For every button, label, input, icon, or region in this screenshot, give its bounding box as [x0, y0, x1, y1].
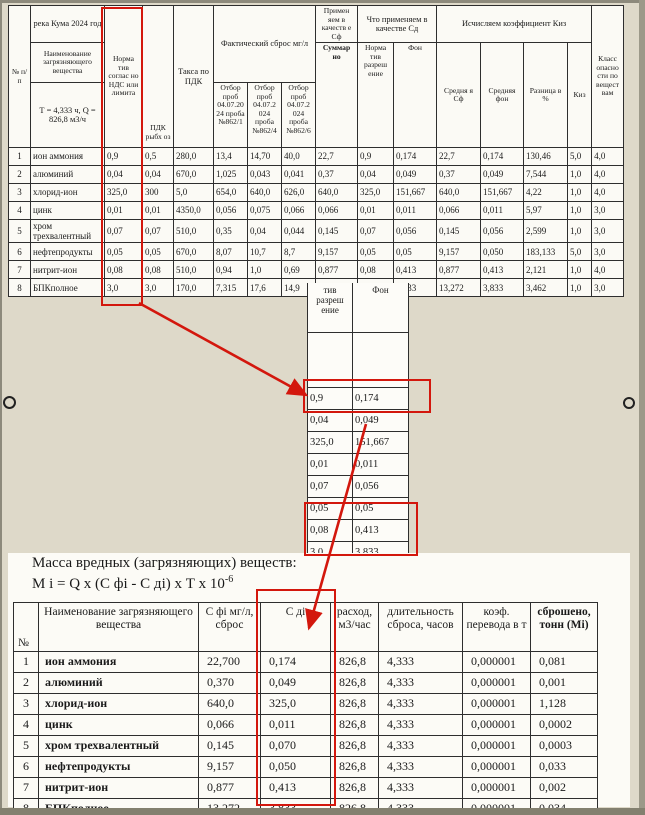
substance-name-cell: хром трехвалентный	[31, 220, 105, 243]
fragment-header-norm: тив разреш ение	[308, 283, 353, 333]
koef-value-cell: 0,000001	[463, 715, 531, 736]
scan-frame-bottom	[0, 808, 645, 815]
red-highlight-cdi-column	[256, 589, 336, 806]
value-cell: 0,69	[282, 261, 316, 279]
row-number-cell: 5	[14, 736, 39, 757]
mass-value-cell: 0,081	[531, 652, 598, 673]
value-cell: 3,462	[524, 279, 568, 297]
value-cell: 17,6	[248, 279, 282, 297]
value-cell: 0,056	[214, 202, 248, 220]
value-cell: 0,413	[481, 261, 524, 279]
substance-name-cell: ион аммония	[39, 652, 199, 673]
value-cell: 0,049	[394, 166, 437, 184]
mass-col-sbrosheno: сброшено, тонн (Mi)	[531, 603, 598, 652]
fragment-table-row: 0,01 0,011	[308, 454, 409, 476]
rashod-value-cell: 826,8	[331, 694, 379, 715]
value-cell: 0,066	[437, 202, 481, 220]
value-cell: 170,0	[174, 279, 214, 297]
value-cell: 670,0	[174, 243, 214, 261]
cfi-value-cell: 0,145	[199, 736, 261, 757]
scan-frame-top	[0, 0, 645, 3]
row-number-cell: 6	[14, 757, 39, 778]
substance-name-cell: алюминий	[31, 166, 105, 184]
col-group-primen: Примен яем в качеств е Сф	[316, 6, 358, 43]
norm-value-cell: 325,0	[308, 432, 353, 454]
value-cell: 4,0	[592, 261, 624, 279]
value-cell: 14,70	[248, 148, 282, 166]
substance-name-cell: нефтепродукты	[31, 243, 105, 261]
value-cell: 280,0	[174, 148, 214, 166]
value-cell: 654,0	[214, 184, 248, 202]
mass-col-dlit: длительность сброса, часов	[379, 603, 463, 652]
dlit-value-cell: 4,333	[379, 673, 463, 694]
cfi-value-cell: 9,157	[199, 757, 261, 778]
cfi-value-cell: 0,370	[199, 673, 261, 694]
row-number-cell: 4	[9, 202, 31, 220]
value-cell: 0,37	[316, 166, 358, 184]
mass-col-num: №	[14, 603, 39, 652]
value-cell: 0,056	[394, 220, 437, 243]
value-cell: 0,075	[248, 202, 282, 220]
value-cell: 3,833	[481, 279, 524, 297]
fon-value-cell: 0,011	[353, 454, 409, 476]
substance-name-cell: БПКполное	[31, 279, 105, 297]
col-group-fact: Фактический сброс мг/л	[214, 6, 316, 83]
mass-col-name: Наименование загрязняющего вещества	[39, 603, 199, 652]
col-header-kiz: Киз	[568, 43, 592, 148]
value-cell: 0,05	[143, 243, 174, 261]
koef-value-cell: 0,000001	[463, 652, 531, 673]
value-cell: 0,08	[143, 261, 174, 279]
value-cell: 8,7	[282, 243, 316, 261]
table-title-river: река Кума 2024 год	[31, 6, 105, 43]
value-cell: 0,056	[481, 220, 524, 243]
col-header-num: № п/п	[9, 6, 31, 148]
dlit-value-cell: 4,333	[379, 736, 463, 757]
value-cell: 3,0	[592, 220, 624, 243]
value-cell: 300	[143, 184, 174, 202]
value-cell: 5,0	[568, 148, 592, 166]
mass-formula: М i = Q х (С фі - С ді) х Т х 10-6	[32, 574, 233, 593]
red-highlight-first-fragment-row	[303, 379, 431, 413]
value-cell: 0,043	[248, 166, 282, 184]
value-cell: 510,0	[174, 220, 214, 243]
fragment-table-row: 325,0 151,667	[308, 432, 409, 454]
scan-frame-left	[0, 0, 2, 815]
mass-value-cell: 1,128	[531, 694, 598, 715]
value-cell: 9,157	[437, 243, 481, 261]
mass-title: Масса вредных (загрязняющих) веществ:	[32, 555, 297, 572]
value-cell: 640,0	[437, 184, 481, 202]
substance-name-cell: ион аммония	[31, 148, 105, 166]
value-cell: 13,272	[437, 279, 481, 297]
mass-col-koef: коэф. перевода в т	[463, 603, 531, 652]
value-cell: 0,9	[358, 148, 394, 166]
mass-value-cell: 0,0003	[531, 736, 598, 757]
col-group-chto: Что применяем в качестве Сд	[358, 6, 437, 43]
fon-value-cell: 0,056	[353, 476, 409, 498]
value-cell: 3,0	[592, 202, 624, 220]
value-cell: 5,0	[568, 243, 592, 261]
value-cell: 183,133	[524, 243, 568, 261]
value-cell: 0,04	[358, 166, 394, 184]
value-cell: 40,0	[282, 148, 316, 166]
value-cell: 0,37	[437, 166, 481, 184]
value-cell: 4,0	[592, 148, 624, 166]
dlit-value-cell: 4,333	[379, 694, 463, 715]
substance-name-cell: хром трехвалентный	[39, 736, 199, 757]
col-header-otbor1: Отбор проб 04.07.20 24 проба №862/1	[214, 83, 248, 148]
col-header-tq: Т = 4,333 ч, Q = 826,8 м3/ч	[31, 83, 105, 148]
norm-value-cell: 0,07	[308, 476, 353, 498]
dlit-value-cell: 4,333	[379, 778, 463, 799]
substance-name-cell: цинк	[31, 202, 105, 220]
punch-hole-left	[3, 396, 16, 409]
value-cell: 4,22	[524, 184, 568, 202]
substance-name-cell: нитрит-ион	[39, 778, 199, 799]
rashod-value-cell: 826,8	[331, 757, 379, 778]
value-cell: 5,0	[174, 184, 214, 202]
value-cell: 3,0	[592, 279, 624, 297]
value-cell: 0,877	[437, 261, 481, 279]
mass-value-cell: 0,001	[531, 673, 598, 694]
col-header-klass: Класс опасно сти по вещест вам	[592, 6, 624, 148]
substance-name-cell: хлорид-ион	[39, 694, 199, 715]
value-cell: 2,121	[524, 261, 568, 279]
red-highlight-last-fragment-rows	[304, 502, 418, 556]
value-cell: 0,04	[143, 166, 174, 184]
value-cell: 1,0	[568, 261, 592, 279]
value-cell: 4350,0	[174, 202, 214, 220]
value-cell: 640,0	[316, 184, 358, 202]
red-highlight-nds-column	[101, 7, 143, 306]
value-cell: 0,041	[282, 166, 316, 184]
value-cell: 7,315	[214, 279, 248, 297]
value-cell: 626,0	[282, 184, 316, 202]
value-cell: 0,011	[394, 202, 437, 220]
value-cell: 0,174	[481, 148, 524, 166]
row-number-cell: 7	[14, 778, 39, 799]
fon-value-cell: 151,667	[353, 432, 409, 454]
value-cell: 670,0	[174, 166, 214, 184]
row-number-cell: 3	[9, 184, 31, 202]
value-cell: 325,0	[358, 184, 394, 202]
value-cell: 151,667	[394, 184, 437, 202]
value-cell: 1,025	[214, 166, 248, 184]
row-number-cell: 1	[9, 148, 31, 166]
row-number-cell: 1	[14, 652, 39, 673]
row-number-cell: 7	[9, 261, 31, 279]
col-header-sred-fon: Средняя фон	[481, 43, 524, 148]
value-cell: 3,0	[143, 279, 174, 297]
value-cell: 0,011	[481, 202, 524, 220]
mass-col-cfi: С фі мг/л, сброс	[199, 603, 261, 652]
scanned-document-page: № п/п река Кума 2024 год Норма тив согла…	[0, 0, 645, 815]
value-cell: 0,877	[316, 261, 358, 279]
value-cell: 5,97	[524, 202, 568, 220]
norm-value-cell: 0,01	[308, 454, 353, 476]
value-cell: 0,07	[143, 220, 174, 243]
rashod-value-cell: 826,8	[331, 715, 379, 736]
value-cell: 1,0	[568, 279, 592, 297]
fragment-table-row: 0,07 0,056	[308, 476, 409, 498]
row-number-cell: 3	[14, 694, 39, 715]
value-cell: 22,7	[437, 148, 481, 166]
value-cell: 2,599	[524, 220, 568, 243]
value-cell: 7,544	[524, 166, 568, 184]
value-cell: 0,066	[282, 202, 316, 220]
value-cell: 13,4	[214, 148, 248, 166]
row-number-cell: 6	[9, 243, 31, 261]
col-header-raznica: Разница в %	[524, 43, 568, 148]
substance-name-cell: нефтепродукты	[39, 757, 199, 778]
value-cell: 4,0	[592, 166, 624, 184]
value-cell: 0,174	[394, 148, 437, 166]
rashod-value-cell: 826,8	[331, 652, 379, 673]
punch-hole-right	[623, 397, 635, 409]
value-cell: 1,0	[568, 220, 592, 243]
row-number-cell: 2	[9, 166, 31, 184]
koef-value-cell: 0,000001	[463, 736, 531, 757]
cfi-value-cell: 640,0	[199, 694, 261, 715]
col-header-fon: Фон	[394, 43, 437, 148]
mass-value-cell: 0,033	[531, 757, 598, 778]
koef-value-cell: 0,000001	[463, 778, 531, 799]
value-cell: 151,667	[481, 184, 524, 202]
value-cell: 640,0	[248, 184, 282, 202]
value-cell: 510,0	[174, 261, 214, 279]
value-cell: 3,0	[592, 243, 624, 261]
value-cell: 1,0	[568, 184, 592, 202]
value-cell: 0,044	[282, 220, 316, 243]
value-cell: 0,05	[394, 243, 437, 261]
value-cell: 8,07	[214, 243, 248, 261]
substance-name-cell: алюминий	[39, 673, 199, 694]
col-header-summarno: Суммар но	[316, 43, 358, 148]
value-cell: 0,01	[358, 202, 394, 220]
value-cell: 0,145	[437, 220, 481, 243]
cfi-value-cell: 22,700	[199, 652, 261, 673]
value-cell: 1,0	[568, 166, 592, 184]
value-cell: 10,7	[248, 243, 282, 261]
value-cell: 0,07	[358, 220, 394, 243]
value-cell: 22,7	[316, 148, 358, 166]
col-header-sred-sf: Средня я Сф	[437, 43, 481, 148]
value-cell: 0,050	[481, 243, 524, 261]
value-cell: 130,46	[524, 148, 568, 166]
mass-value-cell: 0,002	[531, 778, 598, 799]
dlit-value-cell: 4,333	[379, 715, 463, 736]
col-header-otbor3: Отбор проб 04.07.2 024 проба №862/6	[282, 83, 316, 148]
row-number-cell: 5	[9, 220, 31, 243]
value-cell: 0,01	[143, 202, 174, 220]
mass-value-cell: 0,0002	[531, 715, 598, 736]
formula-body: М i = Q х (С фі - С ді) х Т х 10	[32, 576, 225, 592]
substance-name-cell: нитрит-ион	[31, 261, 105, 279]
value-cell: 1,0	[248, 261, 282, 279]
cfi-value-cell: 0,877	[199, 778, 261, 799]
value-cell: 0,04	[248, 220, 282, 243]
value-cell: 0,94	[214, 261, 248, 279]
rashod-value-cell: 826,8	[331, 736, 379, 757]
col-header-taksa: Такса по ПДК	[174, 6, 214, 148]
col-header-otbor2: Отбор проб 04.07.2 024 проба №862/4	[248, 83, 282, 148]
fragment-header-fon: Фон	[353, 283, 409, 333]
value-cell: 0,413	[394, 261, 437, 279]
value-cell: 0,35	[214, 220, 248, 243]
row-number-cell: 4	[14, 715, 39, 736]
scan-frame-right	[639, 0, 645, 815]
substance-name-cell: хлорид-ион	[31, 184, 105, 202]
substance-name-cell: цинк	[39, 715, 199, 736]
formula-exponent: -6	[225, 574, 233, 585]
col-header-name: Наименование загрязняющего вещества	[31, 43, 105, 83]
value-cell: 0,5	[143, 148, 174, 166]
value-cell: 0,08	[358, 261, 394, 279]
value-cell: 4,0	[592, 184, 624, 202]
koef-value-cell: 0,000001	[463, 673, 531, 694]
rashod-value-cell: 826,8	[331, 778, 379, 799]
koef-value-cell: 0,000001	[463, 694, 531, 715]
value-cell: 0,05	[358, 243, 394, 261]
col-header-pdk: ПДК рыбх оз	[143, 6, 174, 148]
dlit-value-cell: 4,333	[379, 652, 463, 673]
value-cell: 0,049	[481, 166, 524, 184]
cfi-value-cell: 0,066	[199, 715, 261, 736]
rashod-value-cell: 826,8	[331, 673, 379, 694]
row-number-cell: 8	[9, 279, 31, 297]
value-cell: 1,0	[568, 202, 592, 220]
value-cell: 0,145	[316, 220, 358, 243]
dlit-value-cell: 4,333	[379, 757, 463, 778]
arrow-nds-to-fragment	[139, 303, 306, 395]
value-cell: 0,066	[316, 202, 358, 220]
koef-value-cell: 0,000001	[463, 757, 531, 778]
row-number-cell: 2	[14, 673, 39, 694]
col-header-norm: Норма тив разреш ение	[358, 43, 394, 148]
col-group-kiz: Исчисляем коэффициент Киз	[437, 6, 592, 43]
value-cell: 9,157	[316, 243, 358, 261]
mass-col-rashod: расход, м3/час	[331, 603, 379, 652]
